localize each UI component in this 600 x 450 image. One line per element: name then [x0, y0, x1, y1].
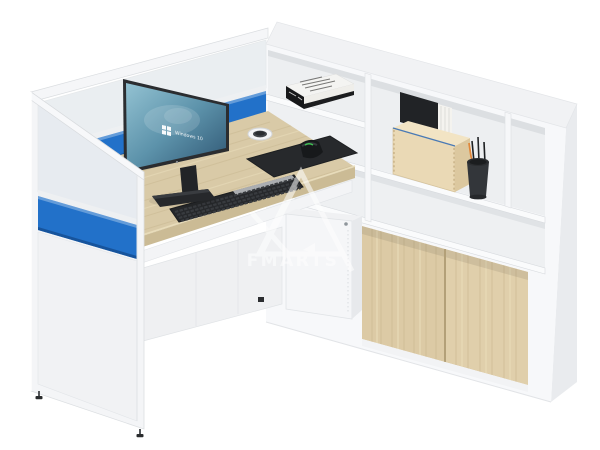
watermark-brand-text: FMARTS [247, 251, 340, 271]
wallpaper-nebula [164, 108, 192, 124]
desk-foot [258, 297, 264, 302]
cup-body [467, 162, 489, 196]
product-render: Windows 10 FMARTS [0, 0, 600, 450]
workstation-scene: Windows 10 FMARTS [0, 0, 600, 450]
cabinet-knob [344, 222, 348, 226]
cabinet-side [352, 216, 362, 319]
divider-1 [365, 73, 371, 222]
divider-2 [505, 112, 511, 208]
monitor-brand-mark [176, 161, 178, 163]
cable-grommet [248, 128, 272, 140]
